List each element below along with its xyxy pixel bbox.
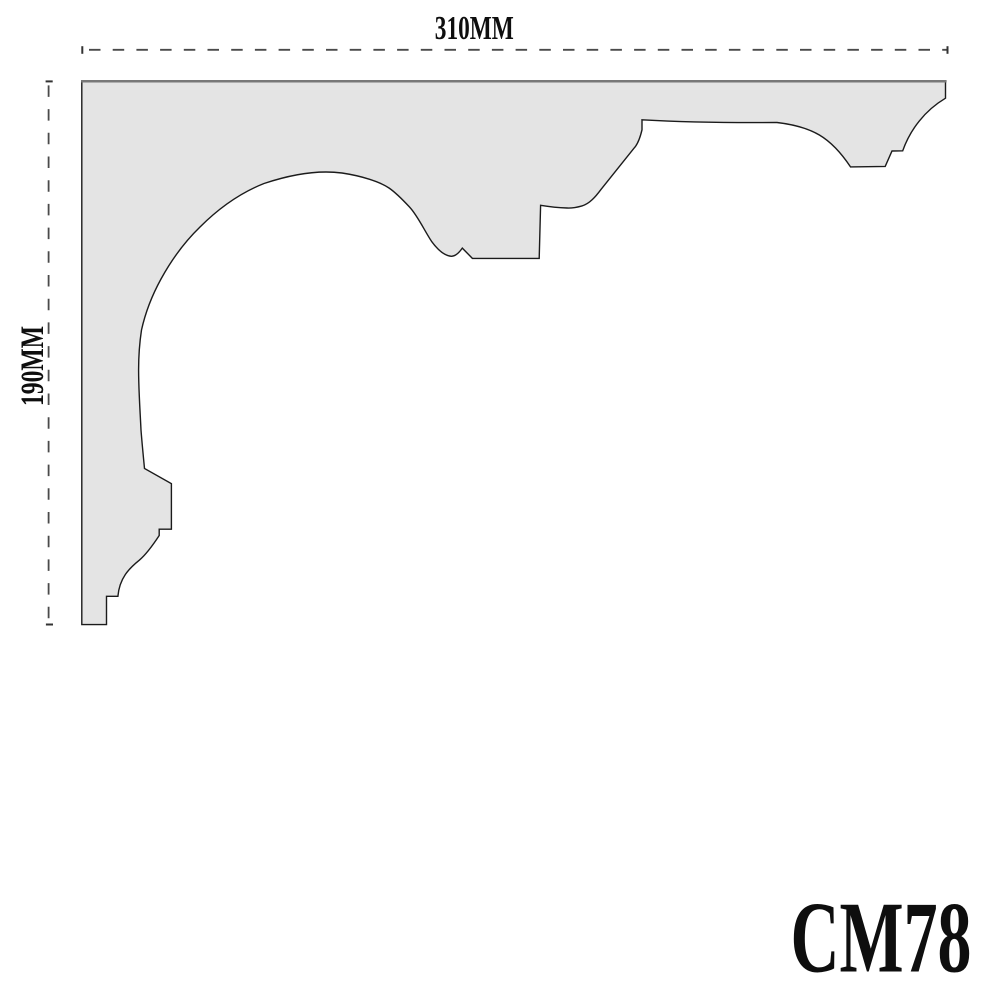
svg-text:310MM: 310MM: [435, 10, 514, 47]
svg-text:190MM: 190MM: [15, 326, 51, 406]
svg-text:CM78: CM78: [791, 882, 972, 995]
